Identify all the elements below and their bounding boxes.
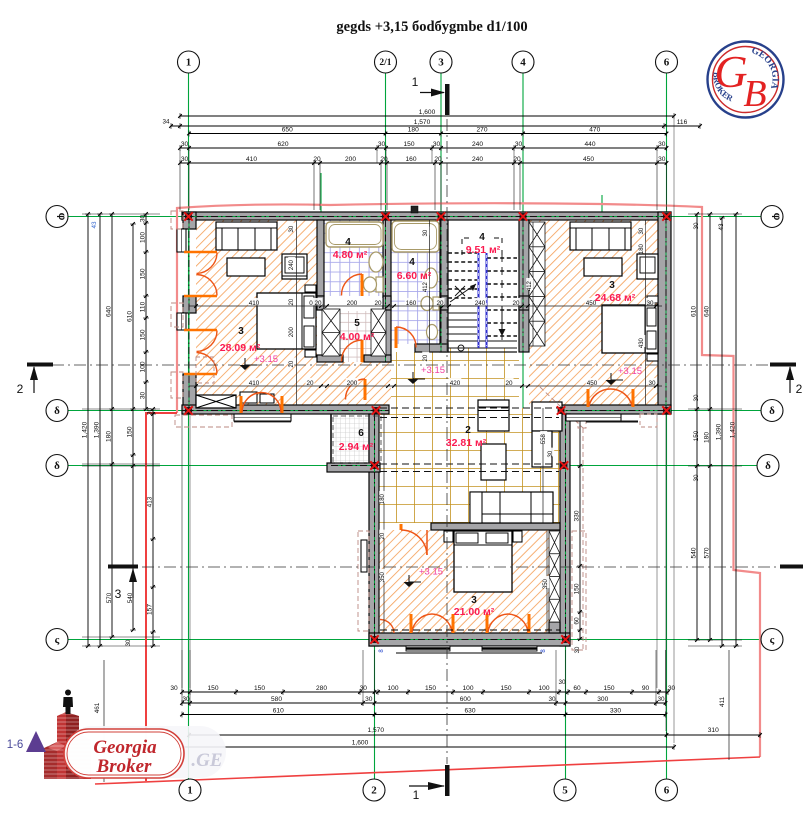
svg-text:240: 240 [472, 156, 483, 163]
svg-text:2.94 м²: 2.94 м² [339, 441, 374, 453]
svg-text:650: 650 [282, 127, 293, 134]
svg-text:+3.15: +3.15 [421, 365, 445, 376]
svg-text:30: 30 [658, 141, 666, 148]
svg-text:20: 20 [505, 380, 513, 387]
svg-text:4.80 м²: 4.80 м² [333, 249, 368, 261]
svg-text:30: 30 [558, 679, 566, 686]
svg-text:640: 640 [704, 306, 711, 317]
svg-text:30: 30 [181, 141, 189, 148]
svg-text:20: 20 [512, 300, 520, 307]
svg-text:150: 150 [140, 268, 147, 279]
svg-text:330: 330 [610, 708, 621, 715]
svg-text:1: 1 [186, 57, 192, 69]
svg-text:420: 420 [450, 380, 461, 387]
svg-text:580: 580 [271, 696, 282, 703]
svg-text:30: 30 [126, 639, 132, 646]
svg-text:100: 100 [387, 685, 398, 692]
svg-text:ς: ς [55, 634, 60, 646]
svg-text:3: 3 [238, 326, 244, 337]
svg-text:gegds +3,15 бodбygmbe d1/100: gegds +3,15 бodбygmbe d1/100 [336, 19, 527, 35]
svg-text:φ: φ [771, 213, 783, 221]
svg-text:.GE: .GE [191, 750, 222, 771]
svg-text:20: 20 [380, 156, 388, 163]
svg-text:30: 30 [657, 696, 665, 703]
svg-text:100: 100 [140, 232, 147, 243]
svg-text:φ: φ [56, 213, 68, 221]
svg-text:30: 30 [648, 380, 656, 387]
svg-text:4: 4 [345, 237, 351, 248]
svg-text:9.51 м²: 9.51 м² [466, 244, 501, 256]
svg-text:150: 150 [207, 685, 218, 692]
svg-text:30: 30 [289, 225, 295, 232]
svg-text:558: 558 [541, 433, 547, 444]
svg-text:30: 30 [658, 156, 666, 163]
svg-text:0: 0 [309, 300, 313, 307]
svg-text:30: 30 [668, 685, 676, 692]
svg-text:ς: ς [770, 634, 775, 646]
svg-text:2: 2 [465, 425, 471, 436]
svg-text:2: 2 [371, 785, 377, 797]
svg-text:60: 60 [574, 617, 581, 625]
svg-text:30: 30 [378, 141, 386, 148]
svg-text:200: 200 [347, 300, 358, 307]
svg-text:540: 540 [691, 547, 698, 558]
svg-text:60: 60 [573, 685, 581, 692]
svg-text:412: 412 [527, 280, 533, 291]
svg-text:150: 150 [500, 685, 511, 692]
svg-text:150: 150 [574, 583, 581, 594]
svg-text:150: 150 [127, 426, 134, 437]
svg-text:240: 240 [472, 141, 483, 148]
svg-text:+3.15: +3.15 [419, 567, 443, 578]
svg-text:21.00 м²: 21.00 м² [454, 606, 495, 618]
svg-text:610: 610 [127, 311, 134, 322]
svg-text:1: 1 [187, 785, 193, 797]
svg-text:30: 30 [147, 408, 154, 416]
svg-text:600: 600 [460, 696, 471, 703]
svg-text:240: 240 [289, 259, 295, 270]
svg-text:2: 2 [17, 382, 24, 396]
svg-text:100: 100 [538, 685, 549, 692]
svg-text:4: 4 [409, 257, 415, 268]
svg-text:410: 410 [249, 300, 260, 307]
svg-text:570: 570 [106, 592, 113, 603]
svg-text:30: 30 [639, 227, 645, 234]
svg-text:30: 30 [433, 141, 441, 148]
svg-text:150: 150 [254, 685, 265, 692]
svg-text:30: 30 [140, 392, 147, 400]
svg-text:4: 4 [479, 232, 485, 243]
svg-text:30: 30 [365, 696, 373, 703]
svg-text:180: 180 [106, 431, 113, 442]
svg-text:B: B [743, 73, 766, 115]
svg-text:330: 330 [574, 510, 581, 521]
svg-text:20: 20 [434, 156, 442, 163]
svg-text:461: 461 [94, 702, 101, 713]
svg-text:1,570: 1,570 [414, 119, 431, 126]
svg-text:470: 470 [589, 127, 600, 134]
svg-text:150: 150 [425, 685, 436, 692]
svg-text:440: 440 [584, 141, 595, 148]
svg-text:1,390: 1,390 [94, 421, 101, 438]
svg-text:30: 30 [140, 215, 147, 223]
svg-text:20: 20 [380, 532, 386, 539]
svg-text:43: 43 [91, 221, 98, 229]
svg-text:20: 20 [436, 300, 444, 307]
svg-text:160: 160 [406, 300, 417, 307]
svg-text:30: 30 [548, 450, 554, 457]
svg-text:1,420: 1,420 [82, 421, 89, 438]
svg-text:Broker: Broker [96, 756, 153, 777]
svg-text:6.60 м²: 6.60 м² [397, 270, 432, 282]
svg-text:1: 1 [413, 788, 420, 802]
svg-text:450: 450 [583, 156, 594, 163]
svg-text:δ: δ [765, 460, 771, 472]
svg-text:+3.15: +3.15 [254, 354, 278, 365]
svg-text:4.00 м²: 4.00 м² [340, 331, 375, 343]
svg-text:20: 20 [374, 300, 382, 307]
svg-text:30: 30 [548, 696, 556, 703]
svg-text:3: 3 [115, 587, 122, 601]
svg-text:200: 200 [289, 326, 295, 337]
svg-text:630: 630 [464, 708, 475, 715]
svg-text:90: 90 [642, 685, 650, 692]
svg-text:100: 100 [462, 685, 473, 692]
svg-text:411: 411 [719, 696, 726, 707]
svg-text:430: 430 [639, 337, 645, 348]
svg-text:1,600: 1,600 [352, 740, 369, 747]
svg-text:310: 310 [708, 727, 719, 734]
svg-text:6: 6 [664, 57, 670, 69]
svg-text:20: 20 [423, 354, 429, 361]
svg-text:1-6: 1-6 [7, 739, 24, 751]
svg-text:350: 350 [380, 571, 386, 582]
svg-text:157: 157 [147, 604, 154, 615]
svg-text:30: 30 [182, 696, 190, 703]
svg-text:4: 4 [520, 57, 526, 69]
svg-text:350: 350 [543, 578, 549, 589]
svg-text:180: 180 [380, 493, 386, 504]
svg-text:180: 180 [639, 243, 645, 254]
svg-text:570: 570 [704, 547, 711, 558]
svg-text:150: 150 [140, 329, 147, 340]
svg-text:24.68 м²: 24.68 м² [595, 292, 636, 304]
svg-text:30: 30 [693, 474, 700, 482]
svg-text:2/1: 2/1 [379, 58, 391, 68]
svg-text:20: 20 [513, 156, 521, 163]
svg-text:32.81 м²: 32.81 м² [446, 437, 487, 449]
svg-text:43: 43 [718, 223, 725, 231]
svg-text:5: 5 [354, 318, 360, 329]
svg-text:2: 2 [796, 382, 803, 396]
svg-text:413: 413 [147, 496, 154, 507]
svg-text:610: 610 [691, 306, 698, 317]
svg-text:280: 280 [316, 685, 327, 692]
svg-text:34: 34 [162, 119, 170, 126]
svg-text:20: 20 [289, 298, 295, 305]
svg-text:240: 240 [475, 300, 486, 307]
svg-text:1,570: 1,570 [367, 727, 384, 734]
svg-text:300: 300 [597, 696, 608, 703]
svg-text:450: 450 [587, 380, 598, 387]
svg-text:30: 30 [181, 156, 189, 163]
svg-text:3: 3 [471, 595, 477, 606]
svg-text:200: 200 [347, 380, 358, 387]
svg-text:30: 30 [515, 141, 523, 148]
svg-text:150: 150 [693, 430, 700, 441]
svg-text:28.09 м²: 28.09 м² [220, 342, 261, 354]
svg-text:610: 610 [273, 708, 284, 715]
svg-text:30: 30 [170, 685, 178, 692]
svg-text:6: 6 [664, 785, 670, 797]
svg-text:412: 412 [423, 281, 429, 292]
svg-text:30: 30 [693, 394, 700, 402]
svg-text:δ: δ [54, 405, 60, 417]
svg-text:640: 640 [106, 306, 113, 317]
svg-text:1: 1 [412, 75, 419, 89]
svg-text:150: 150 [403, 141, 414, 148]
svg-text:20: 20 [289, 360, 295, 367]
svg-text:270: 270 [476, 127, 487, 134]
svg-text:1,600: 1,600 [419, 109, 436, 116]
svg-text:410: 410 [246, 156, 257, 163]
svg-text:δ: δ [769, 405, 775, 417]
svg-text:160: 160 [405, 156, 416, 163]
svg-text:20: 20 [306, 380, 314, 387]
svg-text:6: 6 [358, 428, 364, 439]
svg-text:180: 180 [408, 127, 419, 134]
svg-text:20: 20 [314, 300, 322, 307]
svg-text:1,390: 1,390 [716, 423, 723, 440]
svg-text:620: 620 [277, 141, 288, 148]
svg-text:5: 5 [562, 785, 568, 797]
svg-text:200: 200 [345, 156, 356, 163]
svg-text:30: 30 [360, 685, 368, 692]
svg-text:110: 110 [140, 301, 147, 312]
svg-text:30: 30 [423, 229, 429, 236]
svg-text:100: 100 [140, 361, 147, 372]
svg-text:+3.15: +3.15 [618, 366, 642, 377]
svg-text:3: 3 [438, 57, 444, 69]
svg-text:3: 3 [609, 280, 615, 291]
svg-text:30: 30 [693, 222, 700, 230]
svg-text:20: 20 [313, 156, 321, 163]
svg-text:30: 30 [646, 300, 654, 307]
svg-text:Georgia: Georgia [93, 737, 157, 758]
svg-text:180: 180 [704, 432, 711, 443]
svg-text:1,420: 1,420 [730, 421, 737, 438]
svg-text:δ: δ [54, 460, 60, 472]
svg-text:150: 150 [603, 685, 614, 692]
svg-text:116: 116 [677, 119, 688, 126]
svg-text:410: 410 [249, 380, 260, 387]
